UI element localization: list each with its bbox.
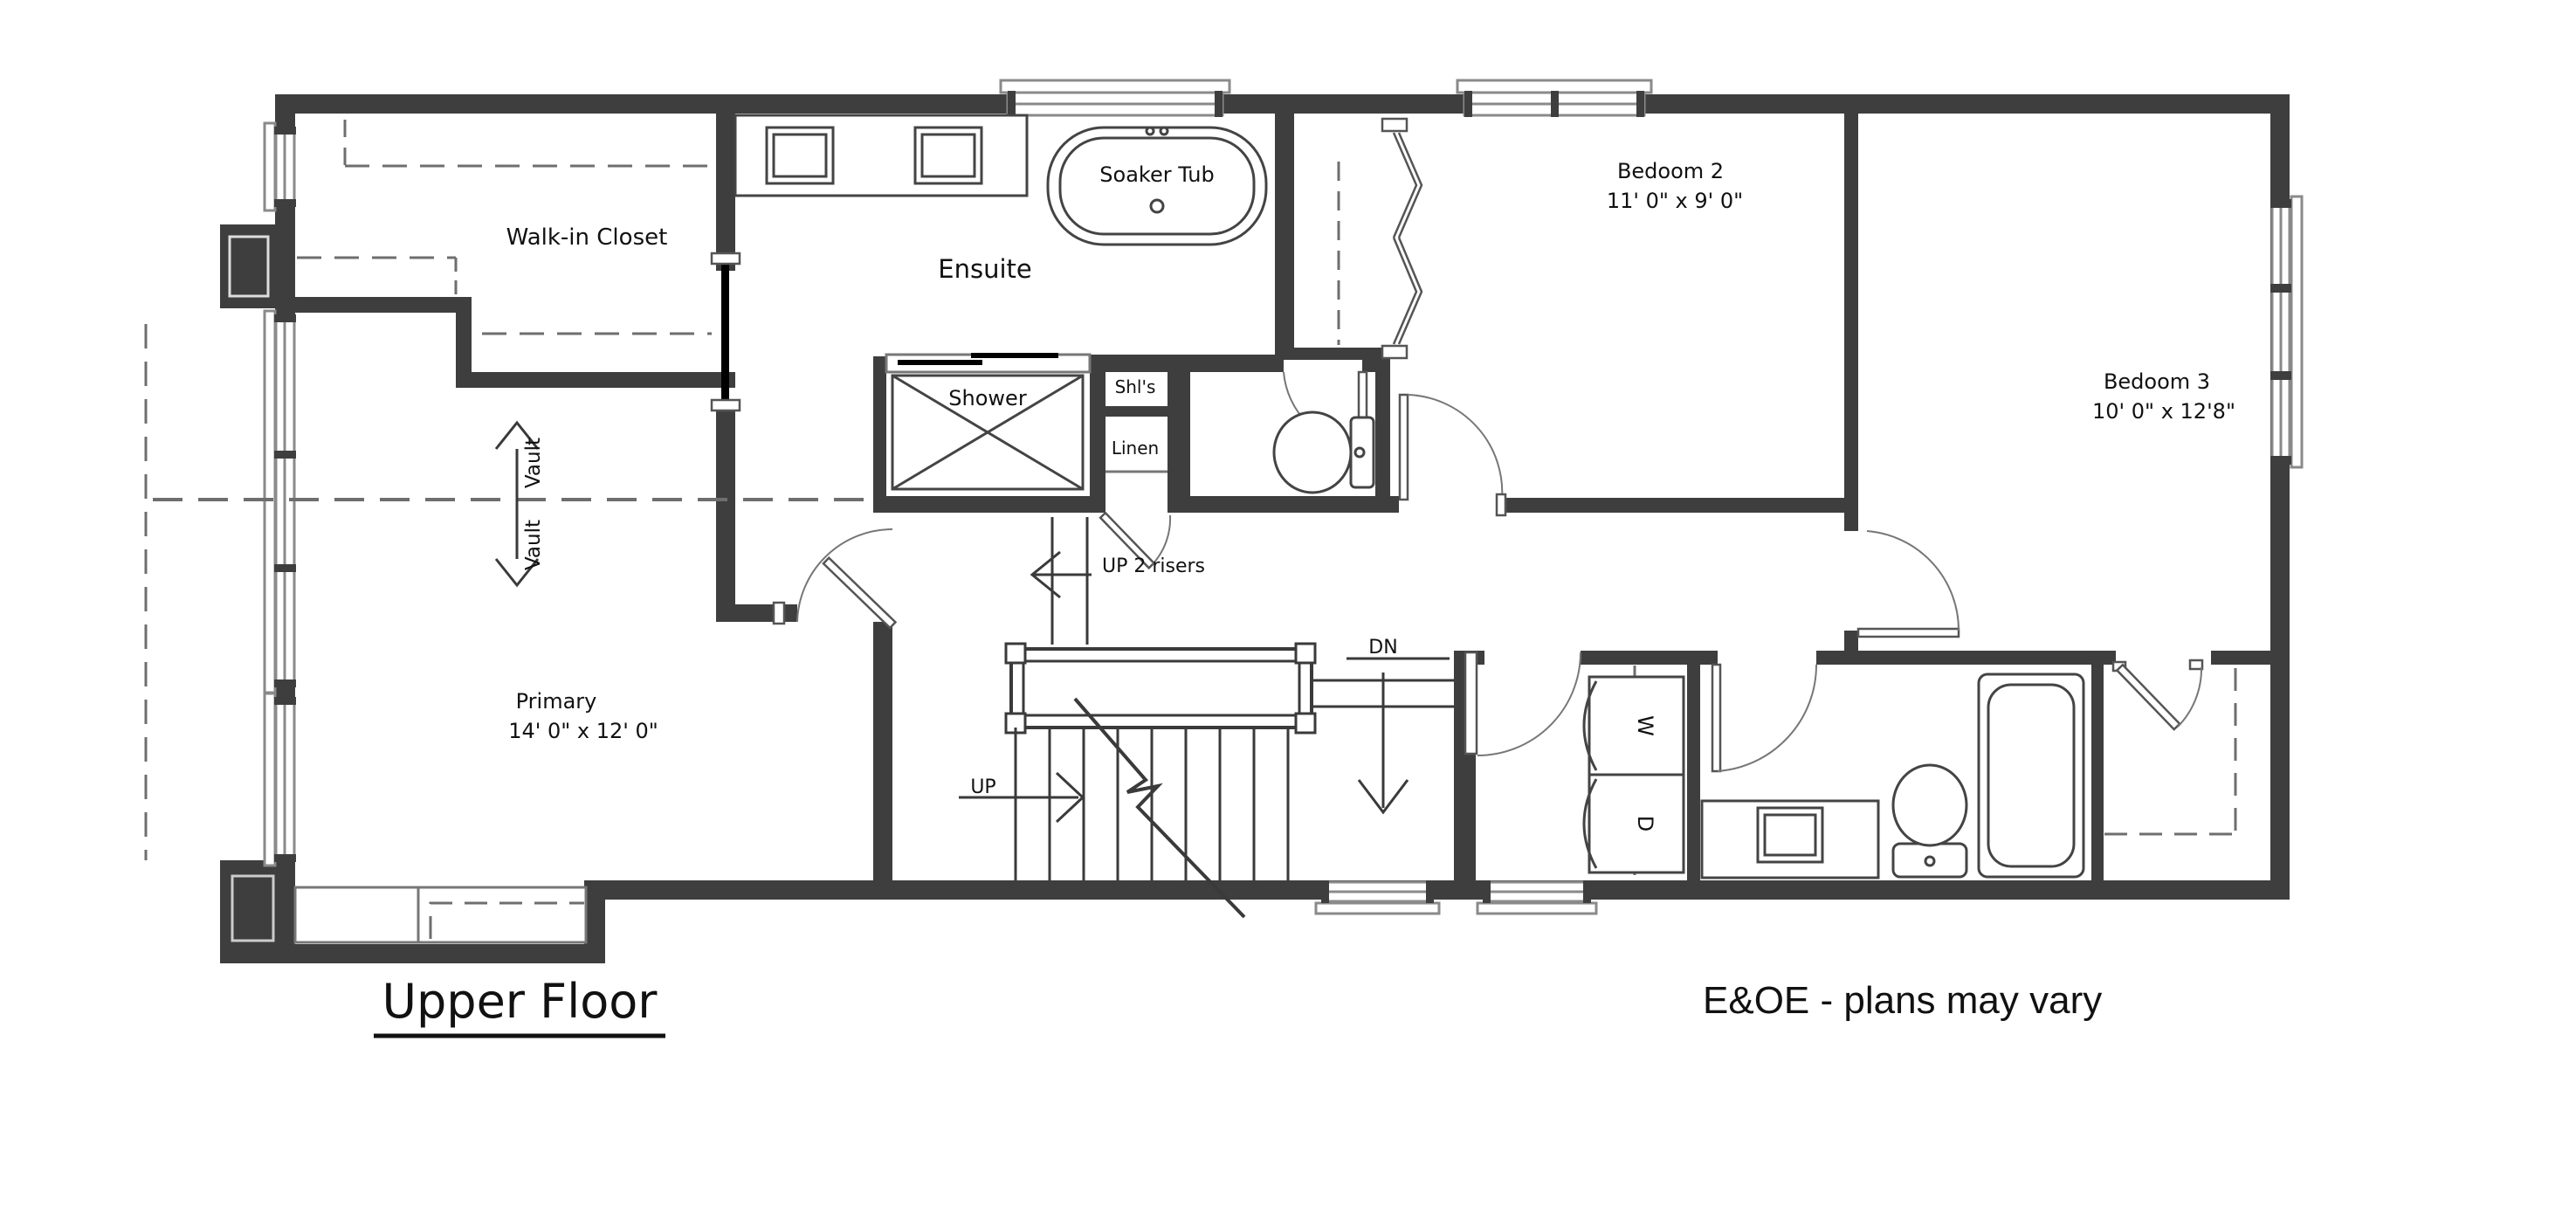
label-up-2-risers: UP 2 risers (1102, 555, 1205, 577)
window-bedroom2-top (1457, 80, 1651, 117)
label-vault-lower: Vault (522, 520, 545, 570)
label-soaker-tub: Soaker Tub (1099, 162, 1214, 187)
window-laundry-bottom (1477, 880, 1596, 914)
label-linen: Linen (1112, 438, 1159, 459)
wall-bottom-step (584, 880, 605, 963)
wall-bottom-left-section (275, 944, 605, 963)
wall-bedroom2-closet-west (1275, 114, 1294, 360)
door-bedroom3-closet (2113, 660, 2202, 729)
shower-stall (886, 353, 1090, 489)
wall-wc-east (1375, 372, 1390, 500)
label-bedroom2: Bedoom 2 (1617, 159, 1724, 183)
wall-closet-east-upper (716, 114, 735, 271)
label-bedroom2-dims: 11' 0" x 9' 0" (1607, 189, 1743, 213)
wall-laundry-north-east (1581, 651, 1687, 665)
bath-vanity (1702, 801, 1878, 878)
label-bedroom3-dims: 10' 0" x 12'8" (2092, 399, 2235, 424)
page-title: Upper Floor (382, 974, 658, 1029)
wall-b3closet-north (2211, 651, 2290, 665)
door-laundry (1465, 652, 1581, 755)
wall-closet-jog (456, 297, 472, 388)
labels: Walk-in Closet Ensuite Soaker Tub Shower… (506, 159, 2235, 831)
wall-linen-east (1167, 355, 1190, 472)
wall-wc-south (1190, 496, 1399, 513)
soaker-tub-drain (1151, 200, 1163, 212)
label-washer: W (1633, 715, 1657, 736)
washer-dryer (1584, 677, 1684, 873)
wall-bottom-right-section (584, 880, 2290, 900)
wall-closet-east-lower (716, 402, 735, 622)
door-bedroom3 (1858, 531, 1959, 637)
wall-shower-west (873, 356, 886, 513)
wall-primary-east (873, 622, 892, 880)
door-bedroom2 (1400, 395, 1505, 515)
wall-shls-linen-divider (1103, 406, 1167, 417)
wall-bedroom2-closet-south (1275, 348, 1384, 360)
label-shower: Shower (948, 386, 1027, 410)
bathtub (1979, 674, 2084, 877)
stair-treads (1016, 728, 1288, 880)
label-dryer: D (1633, 816, 1657, 831)
label-bedroom3: Bedoom 3 (2104, 369, 2210, 394)
label-shls: Shl's (1115, 376, 1156, 397)
window-closet-left (265, 123, 296, 210)
wall-bath-north (1816, 651, 2116, 665)
corner-block-inner (232, 876, 273, 941)
wall-bath-east (2091, 665, 2104, 880)
wall-linen-east-lower (1167, 472, 1190, 513)
bay-window-primary (295, 887, 586, 942)
wall-closet-south-east (472, 372, 735, 388)
label-up: UP (970, 776, 995, 798)
wall-shower-east (1090, 355, 1105, 513)
window-stairs-bottom (1316, 880, 1439, 914)
wall-hall-north (1502, 498, 1844, 513)
titles: Upper Floor E&OE - plans may vary (374, 974, 2102, 1036)
wall-bath-north-west (1687, 651, 1718, 665)
window-primary-left-tall (265, 311, 296, 693)
toilet-wc (1274, 412, 1374, 493)
wall-bedroom-divider (1844, 114, 1858, 531)
wall-laundry-east (1687, 651, 1700, 880)
door-bifold-bedroom2-closet (1382, 119, 1422, 358)
label-dn: DN (1368, 637, 1397, 659)
door-bath (1712, 665, 1816, 771)
wall-shower-south (873, 496, 1103, 513)
window-primary-left-lower (265, 693, 296, 866)
wall-closet-south-west (295, 297, 472, 313)
label-vault-upper: Vault (522, 438, 545, 488)
disclaimer-text: E&OE - plans may vary (1703, 979, 2102, 1022)
toilet-bath (1893, 765, 1966, 877)
ensuite-vanity (735, 115, 1027, 196)
stairwell-rail-inner (1023, 661, 1299, 715)
label-primary: Primary (516, 689, 597, 714)
wall-top (275, 94, 2290, 114)
staircase (1006, 517, 1454, 917)
label-walk-in-closet: Walk-in Closet (506, 224, 668, 251)
label-primary-dims: 14' 0" x 12' 0" (508, 719, 658, 743)
window-ensuite-top (1001, 80, 1229, 117)
window-bedroom3-right (2270, 197, 2302, 467)
chimney-inner (230, 237, 268, 296)
floor-plan-canvas: Walk-in Closet Ensuite Soaker Tub Shower… (0, 0, 2576, 1214)
walkin-closet-pocket-door (721, 264, 729, 409)
label-ensuite: Ensuite (938, 254, 1031, 284)
